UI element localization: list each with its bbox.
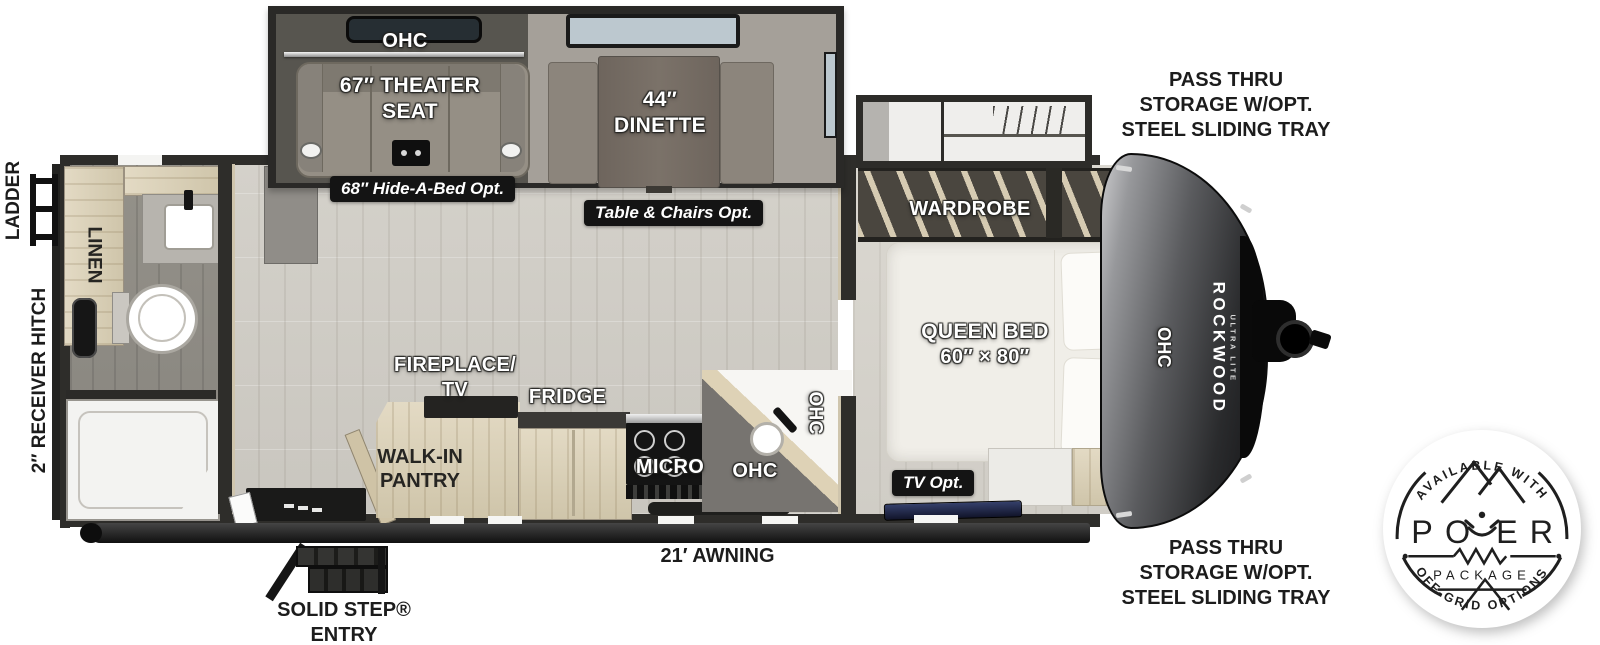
ohc-label-kitchen: OHC — [715, 460, 795, 483]
cabinet-side-panel — [863, 102, 889, 161]
awning-rail-end-cap — [80, 523, 102, 543]
badge-power-er: ER — [1496, 514, 1565, 550]
micro-label: MICRO — [615, 456, 725, 479]
shower-pan-inner — [78, 411, 208, 509]
awning-rail — [90, 523, 1090, 543]
ladder-rung — [30, 178, 58, 184]
marker-light — [1240, 473, 1253, 483]
entry-mat-dash — [298, 506, 308, 510]
shower-door-track — [66, 390, 216, 399]
ohc-label-kitchen-vert: OHC — [804, 391, 826, 434]
cabinet-divider — [941, 102, 944, 161]
bath-faucet — [184, 190, 193, 210]
stove-chrome-trim — [626, 414, 704, 423]
jack-wheel — [1276, 320, 1314, 358]
solid-step-line1: SOLID STEP® — [254, 598, 434, 623]
entry-mat — [246, 488, 366, 521]
ultra-lite-branding-box: ULTRA LITE — [1212, 300, 1254, 396]
ohc-label-bed: OHC — [1153, 327, 1174, 368]
cupholder — [500, 142, 522, 159]
rv-floorplan-scene: LINEN — [0, 0, 1600, 645]
pantry-label-1: WALK-IN — [360, 446, 480, 469]
ohc-label-bed-box: OHC — [1146, 318, 1180, 376]
ladder-rung — [30, 234, 58, 240]
hitch-label-box: 2″ RECEIVER HITCH — [22, 282, 58, 478]
step-tread-1 — [296, 546, 388, 567]
awning-label: 21′ AWNING — [625, 544, 810, 569]
ohc-label-slide: OHC — [350, 30, 460, 53]
fridge-cabinet-seam — [572, 430, 575, 516]
queen-bed-label-1: QUEEN BED — [885, 320, 1085, 344]
ultra-lite-text: ULTRA LITE — [1229, 314, 1238, 382]
step-rail-right — [378, 548, 385, 594]
tv-option-badge: TV Opt. — [892, 470, 974, 496]
wall-window-dash — [658, 516, 694, 524]
pass-thru-top-line2: STORAGE W/OPT. — [1106, 93, 1346, 118]
pass-thru-bottom-line1: PASS THRU — [1106, 536, 1346, 561]
wall-window-dash — [914, 515, 958, 523]
step-tread-2 — [308, 567, 388, 593]
pass-thru-bottom-line3: STEEL SLIDING TRAY — [1106, 586, 1346, 611]
linen-label: LINEN — [82, 227, 104, 284]
dinette-label-2: DINETTE — [585, 114, 735, 138]
kitchen-counter — [518, 412, 630, 428]
theater-seat-label-1: 67″ THEATER — [310, 74, 510, 98]
fireplace-tv-label-1: FIREPLACE/ — [365, 354, 545, 377]
burner-icon — [664, 430, 685, 451]
solid-step-label: SOLID STEP® ENTRY — [254, 598, 434, 645]
hide-a-bed-option-badge: 68″ Hide-A-Bed Opt. — [330, 176, 515, 202]
ladder-label: LADDER — [2, 160, 27, 239]
power-package-badge: AVAILABLE WITH PO ER PACKAGE OFF-GRID OP… — [1381, 428, 1583, 630]
bath-top-window — [118, 155, 162, 165]
console-cupholder-dot — [401, 150, 407, 156]
foot-dresser — [988, 448, 1072, 506]
cabinet-shelf — [944, 134, 1085, 137]
badge-package-text: PACKAGE — [1433, 568, 1531, 583]
marker-light — [1240, 203, 1253, 213]
ladder-label-box: LADDER — [0, 150, 34, 250]
dinette-pedestal — [646, 186, 672, 193]
kitchen-sink — [750, 422, 784, 456]
burner-icon — [634, 430, 655, 451]
fridge-label: FRIDGE — [505, 386, 630, 409]
theater-console — [392, 140, 430, 166]
vanity-counter — [124, 166, 222, 196]
bedroom-wall-bottom — [838, 396, 856, 514]
medicine-cabinet — [72, 298, 97, 358]
pantry-label-2: PANTRY — [360, 470, 480, 493]
sliding-tray-slats — [993, 106, 1073, 134]
pass-thru-top-line3: STEEL SLIDING TRAY — [1106, 118, 1346, 143]
wall-window-dash — [430, 516, 464, 524]
ladder-rung — [30, 206, 58, 212]
pass-thru-label-top: PASS THRU STORAGE W/OPT. STEEL SLIDING T… — [1106, 68, 1346, 143]
solid-step-line2: ENTRY — [254, 623, 434, 645]
toilet-seat — [138, 294, 186, 342]
dinette-label-1: 44″ — [600, 88, 720, 112]
pass-thru-label-bottom: PASS THRU STORAGE W/OPT. STEEL SLIDING T… — [1106, 536, 1346, 611]
dinette-window — [566, 14, 740, 48]
ohc-label-kitchen-vert-box: OHC — [800, 386, 830, 440]
pass-thru-top-line1: PASS THRU — [1106, 68, 1346, 93]
console-cupholder-dot — [415, 150, 421, 156]
queen-bed-label-2: 60″ × 80″ — [885, 346, 1085, 369]
table-chairs-option-badge: Table & Chairs Opt. — [584, 200, 763, 226]
bath-sink — [164, 204, 214, 250]
theater-seat-label-2: SEAT — [310, 100, 510, 124]
shower-pan — [66, 399, 220, 521]
wardrobe-label: WARDROBE — [870, 198, 1070, 221]
bathroom-wall — [218, 164, 235, 514]
entry-mat-dash — [312, 508, 322, 512]
cupholder — [300, 142, 322, 159]
stove-vent-grille — [626, 485, 704, 499]
entry-mat-dash — [284, 504, 294, 508]
wall-window-dash — [488, 516, 522, 524]
dinette-side-window — [824, 52, 837, 138]
pass-thru-bottom-line2: STORAGE W/OPT. — [1106, 561, 1346, 586]
wall-window-dash — [762, 516, 798, 524]
receiver-hitch-label: 2″ RECEIVER HITCH — [28, 287, 53, 472]
pass-thru-storage-cabinet — [856, 95, 1092, 168]
